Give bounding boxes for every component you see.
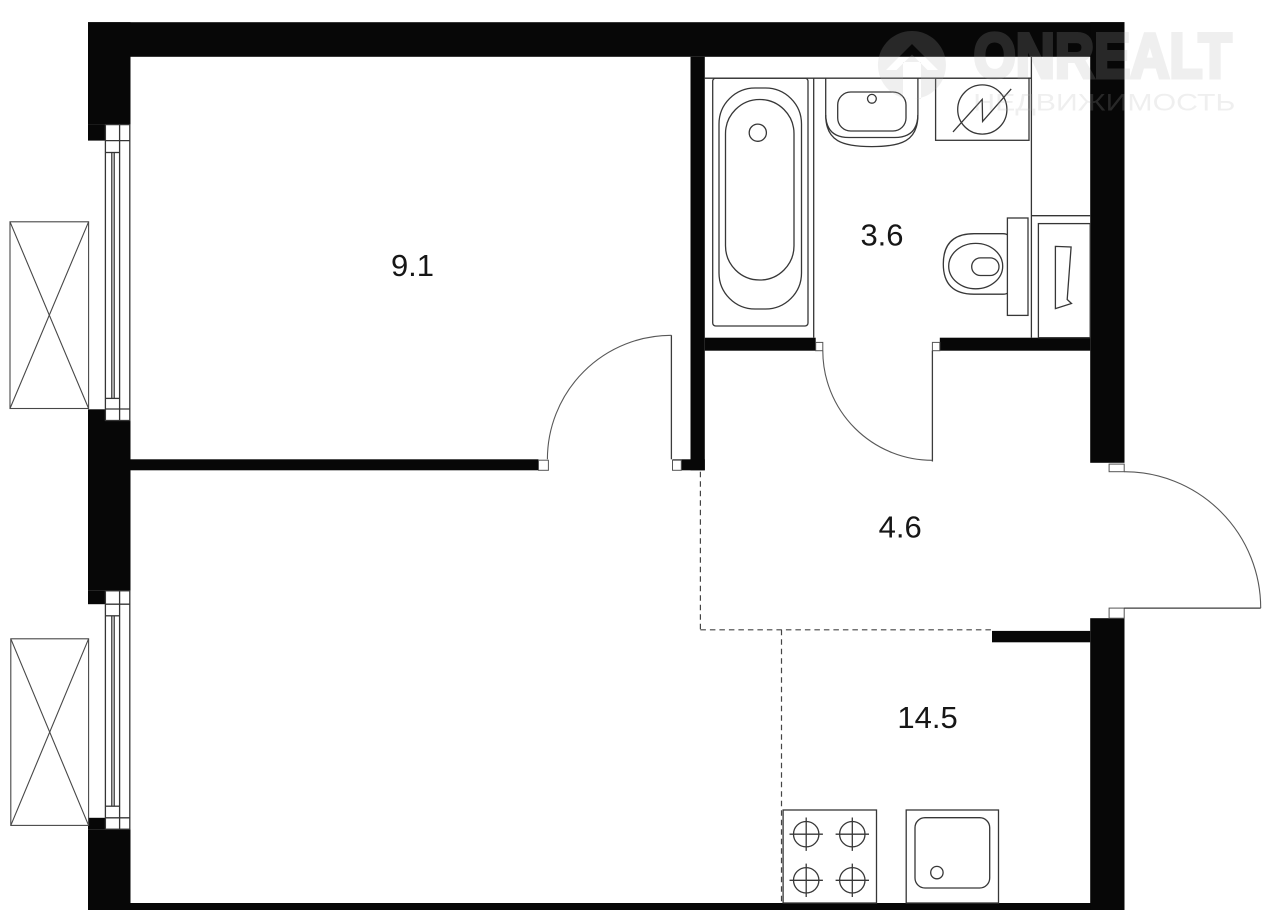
svg-text:4.6: 4.6 xyxy=(879,509,922,544)
svg-text:3.6: 3.6 xyxy=(860,218,903,253)
svg-text:9.1: 9.1 xyxy=(391,248,434,283)
svg-text:ONREALT: ONREALT xyxy=(974,22,1232,92)
svg-text:14.5: 14.5 xyxy=(897,700,957,735)
svg-text:НЕДВИЖИМОСТЬ: НЕДВИЖИМОСТЬ xyxy=(973,89,1235,116)
